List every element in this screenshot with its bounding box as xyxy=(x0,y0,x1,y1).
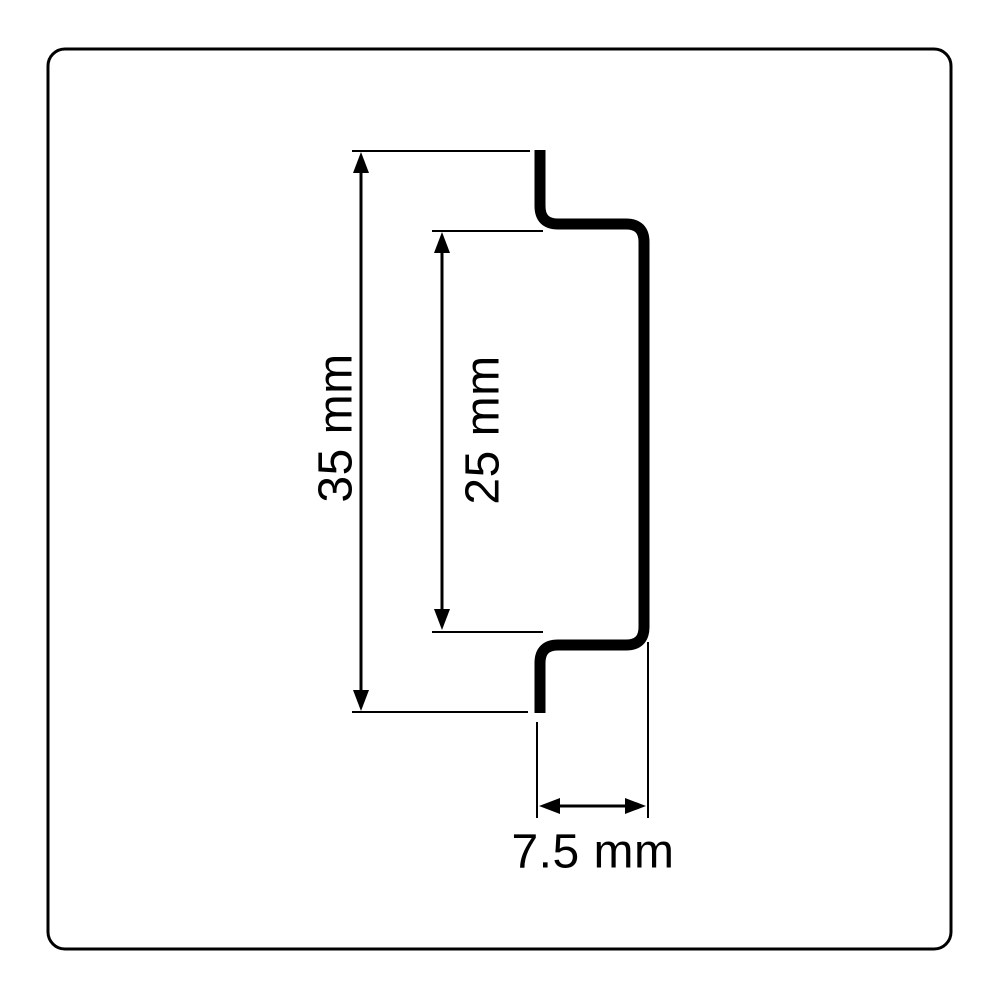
din-rail-profile-outline xyxy=(540,150,644,713)
dimension-label-inner-height: 25 mm xyxy=(457,355,510,504)
technical-drawing-canvas: 35 mm 25 mm 7.5 mm xyxy=(0,0,1000,1000)
arrowhead-down-icon xyxy=(353,690,369,711)
dimension-inner-height: 25 mm xyxy=(432,231,543,632)
arrowhead-down-icon xyxy=(434,609,450,630)
arrowhead-up-icon xyxy=(353,152,369,173)
drawing-page: 35 mm 25 mm 7.5 mm xyxy=(0,0,1000,1000)
arrowhead-right-icon xyxy=(625,798,646,814)
dimension-label-depth: 7.5 mm xyxy=(511,826,674,879)
dimension-label-overall-height: 35 mm xyxy=(310,353,363,502)
arrowhead-left-icon xyxy=(539,798,560,814)
arrowhead-up-icon xyxy=(434,232,450,253)
